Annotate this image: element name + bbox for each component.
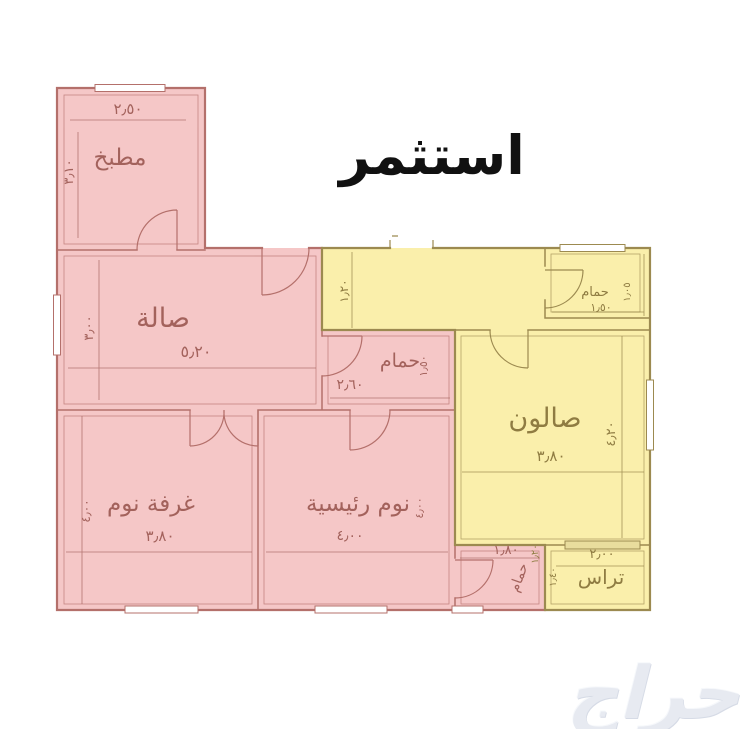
- dim-salon-width: ٣٫٨٠: [536, 447, 565, 465]
- dim-terrace-width: ٢٫٠٠: [589, 547, 614, 562]
- label-bedroom: غرفة نوم: [107, 491, 195, 517]
- dim-bedroom-height: ٤٫٠٠: [79, 499, 93, 522]
- window: [125, 606, 198, 613]
- label-bathroom-top: حمام: [581, 285, 609, 300]
- label-salon: صالون: [508, 403, 581, 434]
- label-master-bedroom: نوم رئيسية: [306, 491, 410, 517]
- dim-bedroom-width: ٣٫٨٠: [145, 527, 174, 545]
- dim-bathroom-top-width: ١٫٥٠: [590, 301, 611, 314]
- label-kitchen: مطبخ: [94, 145, 147, 171]
- dim-kitchen-width: ٢٫٥٠: [113, 100, 142, 118]
- dim-kitchen-height: ٣٫١٠: [62, 159, 77, 184]
- dim-hall-height: ٣٫٠٠: [82, 315, 97, 340]
- dim-hall-width: ٥٫٢٠: [181, 342, 212, 361]
- window: [560, 245, 625, 252]
- label-terrace: تراس: [578, 565, 625, 589]
- window: [95, 85, 165, 92]
- dim-bathroom-top-height: ١٫٠٥: [622, 282, 633, 301]
- window: [452, 606, 483, 613]
- window: [315, 606, 387, 613]
- dim-bathroom-middle-width: ٢٫٦٠: [336, 377, 363, 393]
- dim-salon-height: ٤٫٢٠: [604, 421, 619, 446]
- dim-master-bedroom-height: ٤٫٠٠: [413, 497, 426, 518]
- dim-bathroom-middle-height: ١٫٥٠: [417, 355, 430, 376]
- dim-bathroom-terrace: ١٫٤٠: [548, 567, 559, 586]
- dim-master-bedroom-width: ٤٫٠٠: [336, 528, 363, 544]
- dim-bathroom-bottom-width: ١٫٨٠: [493, 543, 518, 558]
- label-hall: صالة: [136, 303, 190, 334]
- window: [647, 380, 654, 450]
- label-bathroom-middle: حمام: [380, 350, 420, 372]
- window: [54, 295, 61, 355]
- floor-plan-page: مطبخ٢٫٥٠٣٫١٠صالة٥٫٢٠٣٫٠٠حمام٢٫٦٠١٫٥٠١٫٢٠…: [0, 0, 752, 729]
- dim-salon-bathroom: ١٫٢٠: [530, 544, 541, 563]
- page-title: استثمر: [322, 110, 542, 200]
- watermark: حراج: [562, 651, 752, 729]
- dim-corridor-width: ١٫٢٠: [337, 279, 351, 302]
- entrance-marks: [390, 236, 433, 248]
